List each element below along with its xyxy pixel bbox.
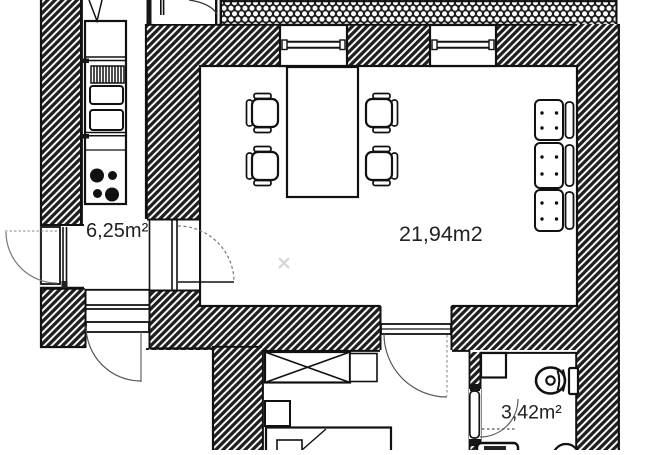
svg-text:3,42m²: 3,42m²: [501, 402, 562, 424]
svg-text:6,25m²: 6,25m²: [86, 220, 149, 242]
svg-text:21,94m2: 21,94m2: [399, 222, 483, 246]
